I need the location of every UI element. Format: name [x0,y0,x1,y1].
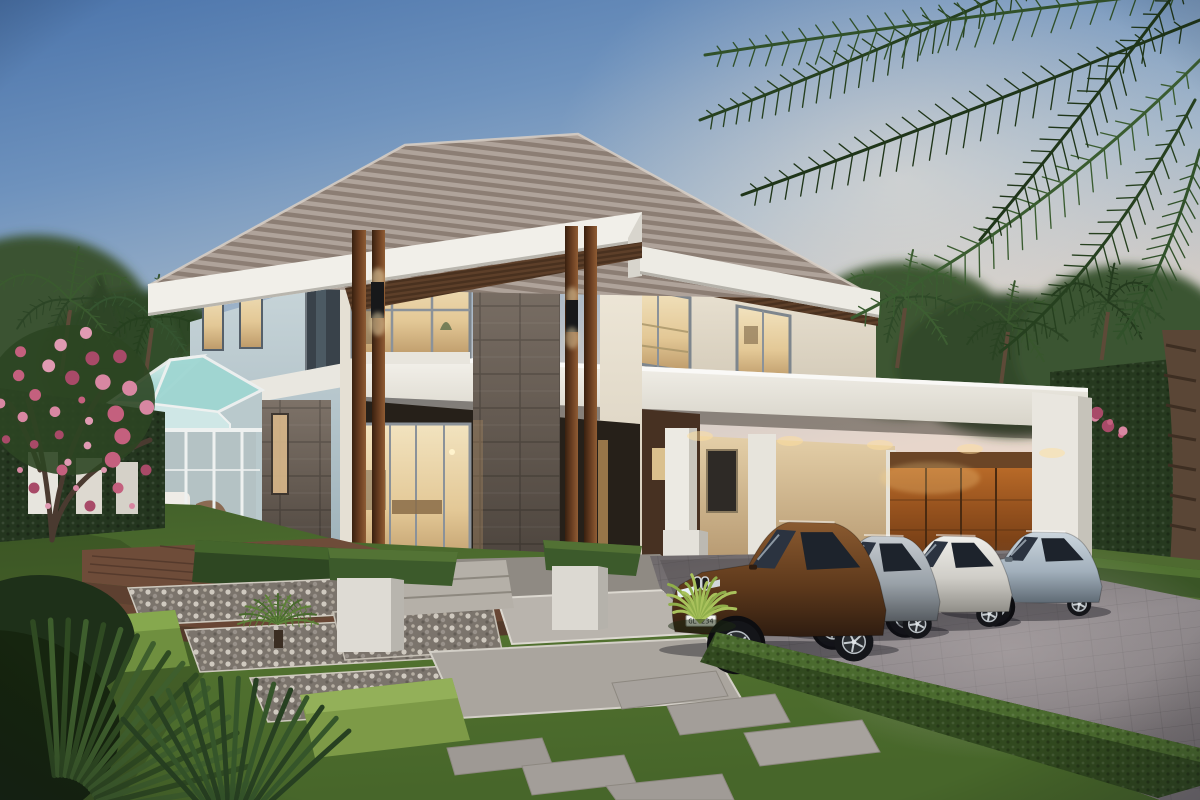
vignette [0,0,1200,800]
villa-scene: GL 045GL 138GL 234 [0,0,1200,800]
rendered-photo: GL 045GL 138GL 234 [0,0,1200,800]
